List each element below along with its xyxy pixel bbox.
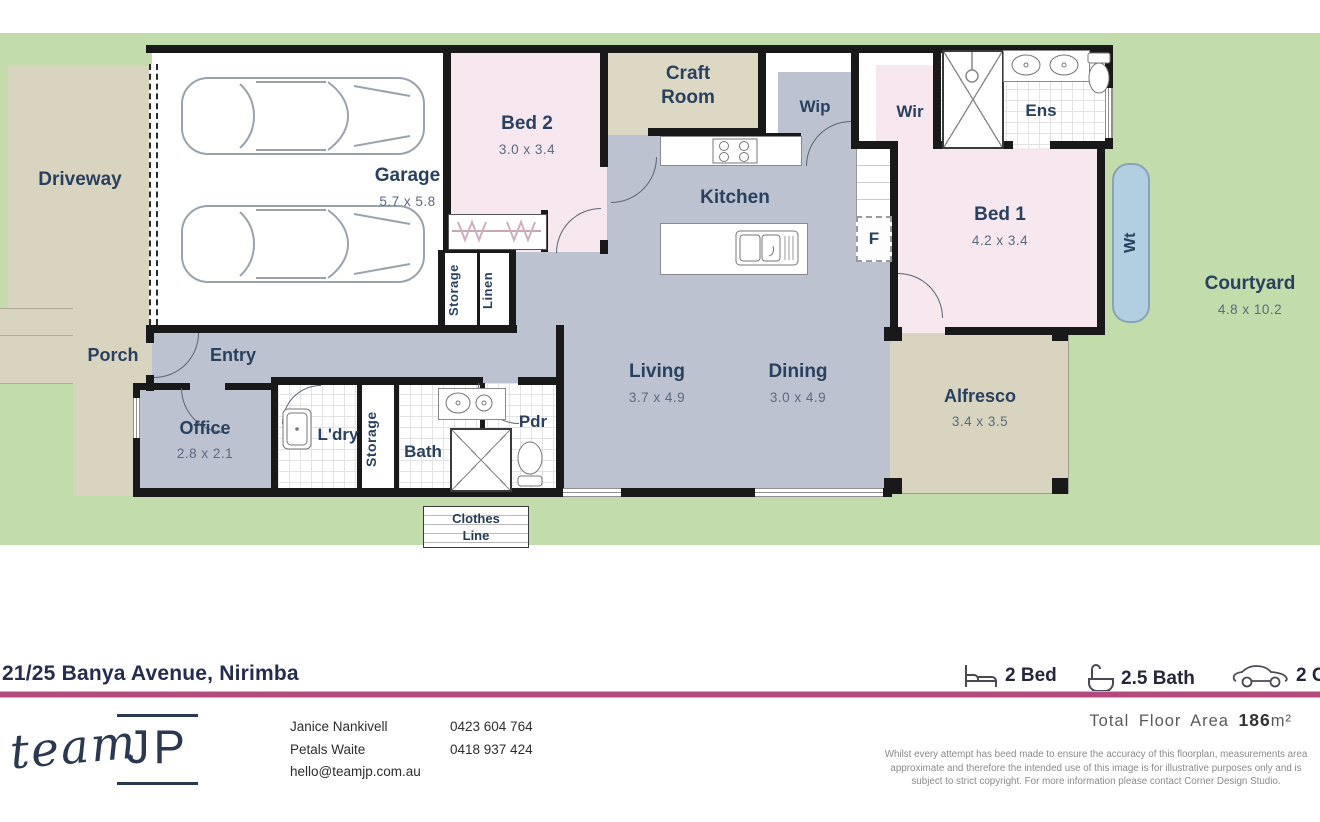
window [133,398,140,438]
agent2-name: Petals Waite [290,739,421,762]
bath-count: 2.5 Bath [1085,663,1195,695]
wall [509,250,516,333]
teamjp-logo-initials: JP [117,714,198,785]
agent1-phone[interactable]: 0423 604 764 [450,716,533,739]
agent1-name: Janice Nankivell [290,716,421,739]
courtyard-label: Courtyard4.8 x 10.2 [1192,272,1308,319]
cooktop-icon [712,138,758,164]
wall [146,325,154,343]
toilet-icon [1086,52,1112,96]
path-area [0,308,73,384]
craft-room-label: Craft Room [644,62,732,110]
car-icon [1232,663,1290,689]
wall [851,45,859,149]
wall [600,45,608,167]
wall [600,240,608,254]
toilet-icon [515,440,545,488]
bath-shower [450,428,512,492]
wall [278,377,483,385]
agent-phones: 0423 604 764 0418 937 424 [450,716,533,761]
pdr-label: Pdr [510,411,556,432]
fridge-box: F [856,216,892,262]
water-tank-label: Wt [1114,165,1148,321]
car-count-label: 2 CAR [1296,665,1320,687]
wall [933,45,941,149]
accent-divider [0,692,1320,697]
floorplan-page: F Wt Clothes Line Driv [0,0,1320,822]
fridge-label: F [869,229,879,249]
basin-icon [442,390,500,416]
bath-label: Bath [396,441,450,462]
wall [556,325,564,490]
path-divider [0,335,73,336]
wall [443,325,517,333]
bath-count-label: 2.5 Bath [1121,668,1195,690]
laundry-tub-icon [282,408,312,450]
shower-head-icon [962,52,982,84]
garage-label: Garage5.7 x 5.8 [355,164,460,211]
ldry-label: L'dry [312,424,364,445]
driveway-area [8,66,152,336]
bed1-label: Bed 14.2 x 3.4 [952,203,1048,250]
bed-count: 2 Bed [963,663,1057,689]
bed2-label: Bed 23.0 x 3.4 [468,112,586,159]
wall [146,325,460,333]
kitchen-label: Kitchen [692,186,778,210]
sink-icon [735,230,799,266]
water-tank: Wt [1112,163,1150,323]
basin-icon [1008,52,1084,78]
hall-strip [510,252,607,333]
wip-label: Wip [790,96,840,117]
storage2-label: Storage [446,256,476,324]
clothes-line-label: Clothes [452,510,500,527]
clothes-line-label: Line [463,527,490,544]
clothes-line: Clothes Line [423,506,529,548]
wall [271,377,278,490]
office-label: Office2.8 x 2.1 [168,417,242,462]
post [884,327,902,341]
bath-icon [1085,663,1115,695]
wall [648,128,765,136]
disclaimer-text: Whilst every attempt has beed made to en… [880,748,1312,789]
car-icon [178,72,428,160]
post [884,478,902,494]
wall [758,45,766,133]
window [755,488,883,497]
wall [394,383,399,490]
pantry-nook [856,148,891,216]
linen-label: Linen [480,256,508,324]
living-dining-area [563,333,890,490]
entry-label: Entry [200,344,266,367]
property-address: 21/25 Banya Avenue, Nirimba [2,662,299,686]
wir-label: Wir [886,101,934,122]
window [563,488,621,497]
agent-names: Janice Nankivell Petals Waite hello@team… [290,716,421,784]
storage-label: Storage [363,400,393,478]
living-label: Living3.7 x 4.9 [618,360,696,407]
car-count: 2 CAR [1232,663,1320,689]
dining-label: Dining3.0 x 4.9 [758,360,838,407]
total-floor-area: Total Floor Area 186m² [1089,710,1292,731]
wall [945,327,1105,335]
agent2-phone[interactable]: 0418 937 424 [450,739,533,762]
porch-label: Porch [80,344,146,367]
bed-count-label: 2 Bed [1005,665,1057,687]
hanger-rail-icon [452,218,541,244]
ens-label: Ens [1014,100,1068,121]
wall [146,375,154,391]
post [1052,478,1068,494]
post [1052,327,1068,341]
wall [1097,148,1105,335]
garage-door-dashed [149,64,158,325]
bed-icon [963,663,999,689]
driveway-label: Driveway [15,168,145,192]
email-address[interactable]: hello@teamjp.com.au [290,761,421,784]
car-icon [178,200,428,288]
wall [438,250,445,333]
alfresco-label: Alfresco3.4 x 3.5 [932,385,1028,430]
